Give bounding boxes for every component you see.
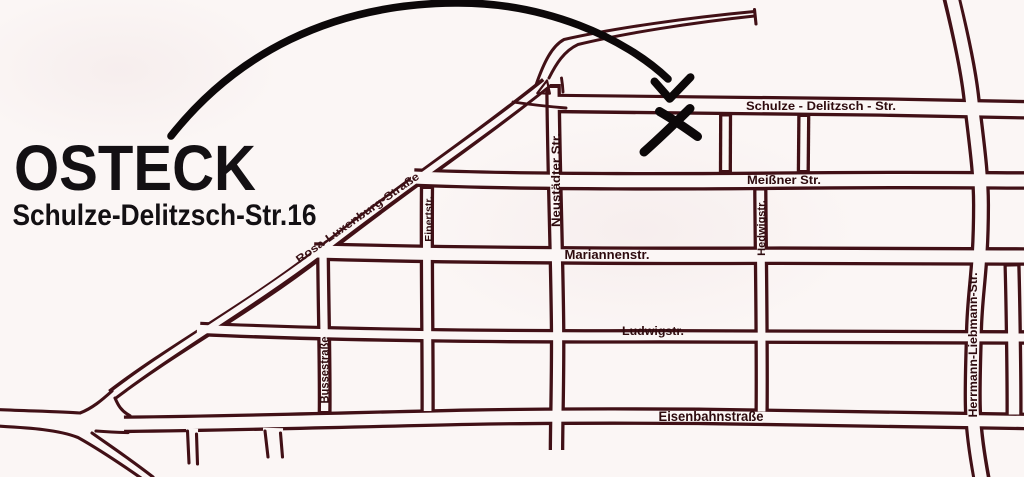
- svg-text:Meißner Str.: Meißner Str.: [747, 173, 821, 187]
- svg-text:Mariannenstr.: Mariannenstr.: [565, 248, 650, 262]
- svg-text:Schulze - Delitzsch - Str.: Schulze - Delitzsch - Str.: [746, 101, 896, 113]
- svg-text:Neustädter Str.: Neustädter Str.: [551, 133, 563, 227]
- svg-text:Hedwigstr.: Hedwigstr.: [756, 200, 768, 256]
- svg-text:Bussestraße: Bussestraße: [320, 337, 332, 404]
- svg-text:Schulze-Delitzsch-Str.16: Schulze-Delitzsch-Str.16: [13, 199, 317, 232]
- svg-text:Ludwigstr.: Ludwigstr.: [622, 324, 684, 338]
- svg-text:Eisenbahnstraße: Eisenbahnstraße: [659, 408, 764, 424]
- svg-text:Einertstr.: Einertstr.: [423, 196, 435, 242]
- svg-text:OSTECK: OSTECK: [14, 132, 256, 204]
- svg-text:Herrmann-Liebmann-Str.: Herrmann-Liebmann-Str.: [968, 273, 980, 418]
